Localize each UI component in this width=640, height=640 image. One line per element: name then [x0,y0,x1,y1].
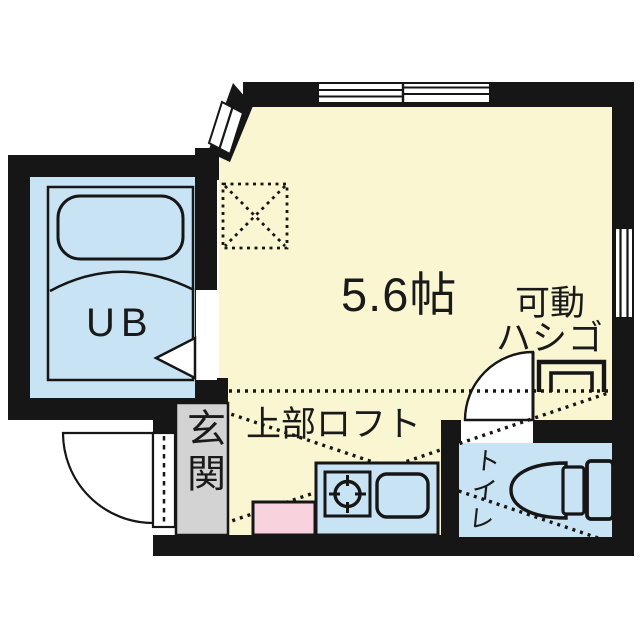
main-room-size-label: 5.6帖 [341,271,457,320]
right-window [615,228,633,318]
wall-above-entry-door [153,398,175,435]
sink [377,474,428,517]
top-sliding-window [318,83,490,103]
kitchen [316,463,438,535]
floor-plan-page: { "plan": { "main_room": { "size_label":… [0,0,640,640]
washer-space [253,502,315,535]
loft-label: 上部ロフト [246,407,421,443]
ladder-label-line1: 可動 [515,286,585,322]
unit-bath-door-opening [196,290,217,380]
ladder-label-line2: ハシゴ [496,321,604,357]
toilet-seat-hinge [563,467,584,514]
entrance-label: 玄関 [182,408,223,498]
entry-door-swing-arc [63,433,153,523]
unit-bath-label: UB [86,303,154,345]
toilet-tank [587,461,613,519]
entry-door [63,433,175,527]
toilet-fixture-icon [511,461,613,519]
bottom-wall [153,535,634,556]
bathtub [58,196,183,259]
toilet-top-wall [533,420,614,444]
